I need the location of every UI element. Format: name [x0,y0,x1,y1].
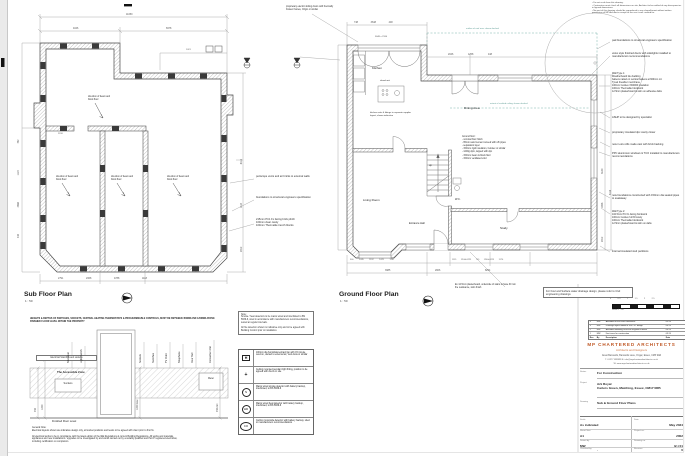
socket-label-consumer-unit: Consumer Unit [209,346,212,363]
extract-fan-icon: H [242,355,250,361]
vaulted-ceiling-note: extent of vaulted ceiling shown dashed [490,103,528,106]
revision-label: Revision [634,448,642,450]
rev-by: MW [596,329,605,332]
checked-by-value: - [597,448,598,452]
dim-label: 11050 [126,13,132,16]
drawing-no-label: Drawing no. [634,440,646,442]
drawn-by-label: Drawn by [580,440,589,442]
legend-desc: Carbon monoxide detector with battery ba… [254,418,313,434]
sheet-size-value: A1 [580,434,584,438]
firm-address: Great Bannards, Bannards Lane, Ongar, Es… [580,355,683,358]
revision-row: 3 MW Drainage layout added to suit C.E. … [589,324,685,328]
general-sheet-notes: • Do not scale from this drawing. • Cont… [592,2,682,15]
socket-label-telephone: Telephone [178,351,181,363]
legend-row: H 100mm dia humidistat extract fan with … [239,350,313,366]
room-label-dining: Dining Area [464,106,480,110]
revision-table: 4 MW Amended to suit client comments 05.… [588,320,685,340]
annotation-pad-foundations: pad foundations to structural engineers … [612,39,682,42]
annotation-velux-doors: velux style finished doors with sideligh… [612,52,682,58]
revision-row: 4 MW Amended to suit client comments 05.… [589,321,685,324]
legend-note: Note: Smoke / heat detectors to be mains… [238,311,314,335]
sub-dimension-lines [22,14,246,284]
dim-label: 448 4888 1124 752 [17,140,20,238]
rev-date: 03.24 [665,332,685,335]
drawing-value: Sub & Ground Floor Plans [597,401,636,405]
room-label-wc: W.C. [455,198,461,201]
rev-no: 3 [589,325,596,328]
rev-no: 1 [589,332,596,335]
divider [597,408,683,409]
annotation-wall-type-2: Wall Type 2: 102.5mm PC FL facing brickw… [612,210,684,225]
dim-label: 450 [34,408,37,412]
dim-label: 900 2035 1192 1025 1110 [350,259,394,261]
heat-detector-icon: HD [242,405,251,414]
project-value: Ark Royal Carters Green, Matching, Essex… [597,382,683,391]
firm-website: W. www.mpcharteredarchitects.co.uk [580,363,683,366]
revision-row: 2 MW Amended following structural engine… [589,328,685,332]
rev-by: MW [596,321,605,324]
socket-label-television: Television [67,352,70,363]
firm-subtitle: Architects and Designers [580,349,683,352]
annotation-ppc-windows: PPC aluminium windows & TCO installed to… [612,152,682,158]
rev-date: 05.24 [665,321,685,324]
stairs [427,150,449,196]
rev-desc: Drainage layout added to suit C.E. desig… [605,325,665,328]
date-value: May 2024 [656,423,683,427]
firm-contact: T. 01277 899999 E. info@mpcharteredarchi… [580,359,683,362]
legend-row: HD Mains wired heat detector with batter… [239,400,313,417]
smoke-detector-icon: S [242,388,251,397]
rev-date: 04.24 [665,329,685,332]
rev-header: Rev [589,336,596,339]
dim-label: 3985 2906 8254 [385,269,490,272]
dim-label: 748 3648 448 [354,21,393,24]
dim-label: 2198 [58,133,63,135]
legend-table: H 100mm dia humidistat extract fan with … [238,349,314,435]
divider [580,439,683,440]
sockets-box-label: Sockets [56,383,80,386]
rev-no: 2 [589,329,596,332]
rev-header: Description [605,336,665,339]
socket-label-door-bell: Door Bell [191,353,194,363]
legend-desc: Ceiling mounted pendant light fitting, p… [254,367,313,383]
annotation-ashp: ASHP to be designed by specialist [612,116,682,119]
dim-label: 6978 [166,27,171,30]
beam-direction-label: direction of beam and block floor [111,176,139,182]
plasterboard-note: Ex 12.5mm plasterboard, underside of sta… [455,284,517,290]
divider [580,416,683,417]
dim-label: 2046 1258 448 [448,53,492,56]
annotation-dpc-closer: proprietary insulated dpc cavity closer [612,131,682,134]
beam-direction-label: direction of beam and block floor [56,176,84,182]
legend-row: CO Carbon monoxide detector with battery… [239,417,313,434]
room-label-living: Living Room [363,198,380,202]
light-fitting-icon: + [245,372,248,378]
rev-header: Date [665,336,685,339]
kitchen-note: kitchen units & fittings to separate sup… [370,112,414,118]
annotation-stud-partitions: internal insulated stud partitions [612,250,682,253]
section-markers [244,58,300,68]
sub-floor-plan-walls [22,14,246,284]
date-label: Date [634,419,639,421]
drawing-sheet: • Do not scale from this drawing. • Cont… [0,0,685,456]
socket-heights-detail [30,330,228,420]
socket-label-tv-point: TV Point [165,353,168,363]
room-label-kitchen: Kitchen [372,66,382,70]
sub-floor-plan-title: Sub Floor Plan [24,291,72,299]
dim-label: 1200 [41,405,44,410]
dim-label: 4046 [73,27,78,30]
scale-label: Scale [580,419,585,421]
drainage-note: For Foul and Surface water drainage desi… [543,287,633,298]
status-value: For Construction [597,371,622,375]
revision-row: 1 MW First issue for construction 03.24 [589,331,685,335]
legend-desc: Mains wired heat detector with battery b… [254,401,313,417]
divider [580,429,683,430]
revision-header-row: Rev By Description Date [589,335,685,339]
rev-desc: Amended to suit client comments [605,321,665,324]
socket-label-light-switch: Light Switch [80,350,83,363]
kitchen-fittings [354,51,462,191]
room-label-hall: Entrance Hall [409,222,425,225]
room-label-study: Study [500,226,508,230]
socket-general-note: General Note: Electrical layouts shown a… [32,427,182,444]
annotation-foundations: foundations to structural engineers spec… [256,196,318,199]
rev-no: 4 [589,321,596,324]
sub-detail-boxes [206,46,222,52]
bifold-size-label: 3648 x 2184 [375,36,387,38]
dim-label: 2912 1858 3180 [601,169,604,242]
checked-by-label: Checked by [580,448,592,450]
dim-label: 1115 1244x1225 719 1244x1225 1170 [452,259,503,261]
island-label: island unit [380,80,390,83]
socket-label-switches: Switches [152,353,155,363]
drawing-label: Drawing [580,401,588,403]
rev-desc: Amended following structural engineers d… [605,329,665,332]
firm-name: MP CHARTERED ARCHITECTS [580,342,683,347]
rev-date: 04.24 [665,325,685,328]
dim-label: 2912 1124 8116 [240,159,243,252]
dim-label: 2791 2368 4788 1118 [58,277,147,280]
divider [580,368,683,369]
scalebar-ticks: 0 0.5 1 1.5 2 2.5 [610,298,654,300]
dim-label: 1200 max [136,400,139,411]
stairs-up-label: up [429,164,432,167]
annotation-cills: new in-situ cills made cast with brick b… [612,143,682,146]
project-no-label: Project no. [634,430,644,432]
legend-desc: 100mm dia humidistat extract fan with 15… [254,350,313,366]
beam-direction-label: direction of beam and block floor [88,96,116,102]
accessible-zone-label: The Accessible Zone [57,371,85,374]
rev-desc: First issue for construction [605,332,665,335]
socket-detail-header: HEIGHTS & DEPTHS OF SWITCHES, SOCKETS, C… [30,318,220,324]
rev-header: By [596,336,605,339]
ffl-label: Finished Floor Level [52,420,76,423]
revision-value: 0 [656,448,683,452]
registration-marks [1,4,132,67]
legend-row: + Ceiling mounted pendant light fitting,… [239,366,313,383]
divider [597,378,683,379]
legend-desc: Mains wired smoke detector with battery … [254,384,313,400]
floor-buildup-spec: Ground floor: - nominal floor finish - 6… [462,136,528,161]
project-label: Project [580,382,587,384]
rev-by: MW [596,332,605,335]
rev-by: MW [596,325,605,328]
roof-outline-note: outline of roof over shown dashed [466,28,499,31]
socket-label-sockets: Sockets [139,354,142,363]
legend-row: S Mains wired smoke detector with batter… [239,383,313,400]
dim-label: 1021 [186,49,191,51]
beam-direction-label: direction of beam and block floor [167,176,195,182]
scale-value: As indicated [580,423,598,427]
status-label: Status [580,371,586,373]
annotation-wall-type-1: Wall Type 1: Weatherboard tile cladding … [612,72,684,93]
ground-floor-plan-title: Ground Floor Plan [339,291,399,299]
beam-direction-arrows [62,103,181,196]
scalebar-caption: Scale 1 : 50 [612,309,624,311]
dashed-outlines [427,33,597,108]
divider [597,397,683,398]
dim-label: 450 min [216,403,219,412]
plan-linework [0,0,685,456]
annotation-sliding-doors: proprietary electric sliding doors with … [286,6,334,12]
project-no-value: 2002 [656,434,683,438]
co-detector-icon: CO [240,422,252,431]
sheet-size-label: Sheet Size [580,430,591,432]
meter-box-label: Meter [200,378,222,381]
sub-floor-plan-scale: 1 : 50 [25,300,33,304]
annotation-brick-plinth: 215mm PC1 FL facing brick plinth 100mm c… [256,218,318,228]
ground-floor-plan-scale: 1 : 50 [340,300,348,304]
annotation-periscope-vents: periscope vents and air bricks to extern… [256,175,318,178]
annotation-drainage-pipes: new foundations constructed with 150mm d… [612,194,682,200]
